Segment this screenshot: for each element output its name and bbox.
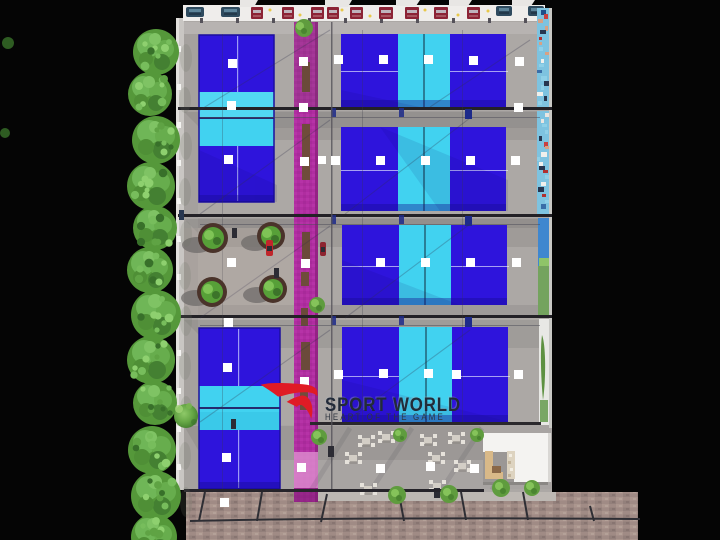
svg-text:HEART OF THE GAME: HEART OF THE GAME: [325, 412, 445, 422]
